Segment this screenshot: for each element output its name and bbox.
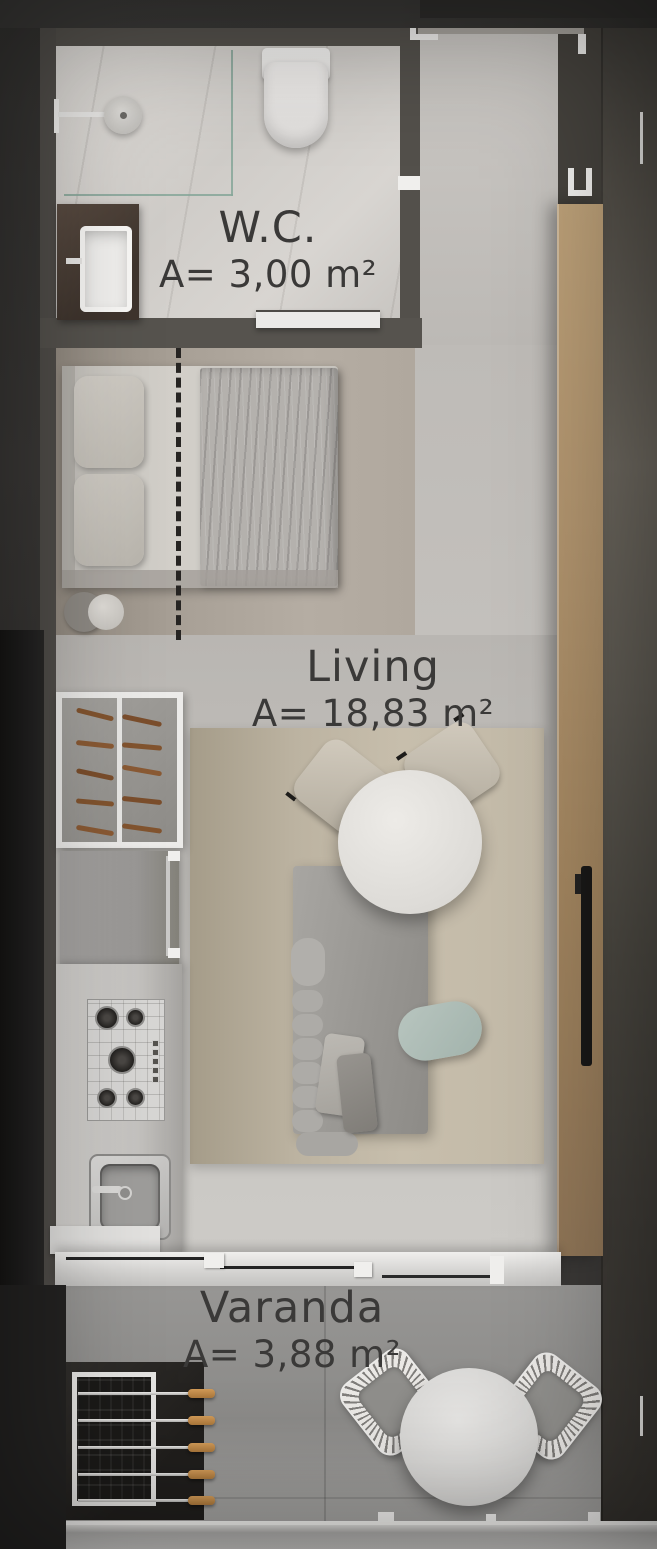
cooktop-knob bbox=[152, 1076, 159, 1083]
sofa-back-segment bbox=[292, 990, 323, 1012]
cooktop-knob bbox=[152, 1058, 159, 1065]
living-label: Living A= 18,83 m² bbox=[238, 645, 508, 734]
pivot-door-bracket-base bbox=[568, 190, 592, 196]
refrigerator-door-line bbox=[166, 856, 170, 956]
grill-skewer bbox=[78, 1389, 218, 1398]
wall-marker-top bbox=[640, 112, 643, 164]
burner-top-right bbox=[126, 1008, 145, 1027]
cooktop-knob bbox=[152, 1040, 159, 1047]
surround-top-right-corner bbox=[420, 0, 657, 18]
grill-skewer bbox=[78, 1416, 218, 1425]
skewer-handle bbox=[188, 1416, 215, 1425]
railing-post bbox=[486, 1514, 496, 1524]
glass-railing bbox=[66, 1524, 657, 1549]
burner-center bbox=[108, 1046, 136, 1074]
skewer-handle bbox=[188, 1496, 215, 1505]
skewer-handle bbox=[188, 1470, 215, 1479]
sliding-glass-pane-1 bbox=[66, 1257, 208, 1260]
grill-skewer bbox=[78, 1470, 218, 1479]
sliding-door-stile-2 bbox=[354, 1262, 372, 1277]
wc-room-area: A= 3,00 m² bbox=[148, 256, 388, 295]
skewer-rod bbox=[78, 1473, 190, 1476]
round-dining-table bbox=[338, 770, 482, 914]
tv-mount bbox=[575, 874, 581, 894]
wall-wc-east bbox=[400, 28, 420, 318]
outdoor-round-table bbox=[400, 1368, 538, 1506]
entry-floor bbox=[420, 33, 558, 345]
burner-top-left bbox=[95, 1006, 119, 1030]
wood-pivot-door-panel bbox=[557, 204, 603, 1256]
burner-bottom-right bbox=[126, 1088, 145, 1107]
shower-glass-partition-horizontal bbox=[64, 194, 233, 196]
bed-pillow-top bbox=[74, 376, 144, 468]
closet-divider bbox=[117, 698, 122, 842]
wc-room-name: W.C. bbox=[148, 206, 388, 251]
sink-faucet-knob bbox=[118, 1186, 132, 1200]
glass-railing-edge bbox=[66, 1521, 657, 1525]
bed-foot-bench bbox=[62, 570, 338, 588]
washbasin bbox=[80, 226, 132, 312]
refrigerator bbox=[60, 851, 179, 964]
wall-marker-bottom bbox=[640, 1396, 643, 1436]
skewer-rod bbox=[78, 1499, 190, 1502]
skewer-rod bbox=[78, 1419, 190, 1422]
living-room-area: A= 18,83 m² bbox=[238, 695, 508, 734]
skewer-handle bbox=[188, 1389, 215, 1398]
burner-bottom-left bbox=[97, 1088, 117, 1108]
cooktop-knob bbox=[152, 1049, 159, 1056]
shower-glass-partition-vertical bbox=[231, 50, 233, 196]
entry-jamb-right-v bbox=[578, 34, 586, 54]
sliding-glass-pane-3 bbox=[382, 1275, 490, 1278]
varanda-room-name: Varanda bbox=[160, 1286, 424, 1331]
skewer-rod bbox=[78, 1392, 190, 1395]
cooktop-knob bbox=[152, 1067, 159, 1074]
living-floor-upper bbox=[415, 345, 558, 635]
dashed-partition-line bbox=[176, 348, 181, 640]
surround-bottom-left bbox=[0, 1285, 66, 1549]
wall-right bbox=[601, 0, 657, 1549]
grill-skewer bbox=[78, 1443, 218, 1452]
sofa-back-segment bbox=[292, 1110, 323, 1132]
living-room-name: Living bbox=[238, 645, 508, 690]
wall-tv bbox=[581, 866, 592, 1066]
sofa-back-segment bbox=[292, 1014, 323, 1036]
sofa-back-segment bbox=[292, 1038, 323, 1060]
railing-post bbox=[588, 1512, 600, 1524]
sliding-glass-pane-2 bbox=[220, 1266, 358, 1269]
floor-plan-image: W.C. A= 3,00 m² Living A= 18,83 m² Varan… bbox=[0, 0, 657, 1549]
wc-label: W.C. A= 3,00 m² bbox=[148, 206, 388, 295]
sofa-armrest bbox=[291, 938, 325, 986]
bed-duvet bbox=[200, 368, 338, 586]
wc-door-jamb bbox=[398, 176, 420, 190]
sliding-door-stile-3 bbox=[490, 1256, 504, 1284]
wall-top bbox=[40, 28, 420, 46]
varanda-room-area: A= 3,88 m² bbox=[160, 1336, 424, 1375]
skewer-handle bbox=[188, 1443, 215, 1452]
basin-faucet bbox=[66, 258, 82, 264]
sofa-foot-cushion bbox=[296, 1132, 358, 1156]
wc-door-leaf bbox=[256, 310, 380, 328]
sliding-door-stile-1 bbox=[204, 1253, 224, 1268]
bed-pillow-bottom bbox=[74, 474, 144, 566]
railing-post bbox=[378, 1512, 394, 1524]
varanda-label: Varanda A= 3,88 m² bbox=[160, 1286, 424, 1375]
surround-left-dark-block bbox=[0, 630, 44, 1290]
nightstand-object bbox=[88, 594, 124, 630]
counter-end-cap bbox=[50, 1226, 160, 1254]
toilet-bowl bbox=[264, 62, 328, 148]
refrigerator-hinge-bottom bbox=[168, 948, 180, 958]
refrigerator-hinge-top bbox=[168, 851, 180, 861]
skewer-rod bbox=[78, 1446, 190, 1449]
shower-head-center bbox=[120, 112, 127, 119]
grill-skewer bbox=[78, 1496, 218, 1505]
